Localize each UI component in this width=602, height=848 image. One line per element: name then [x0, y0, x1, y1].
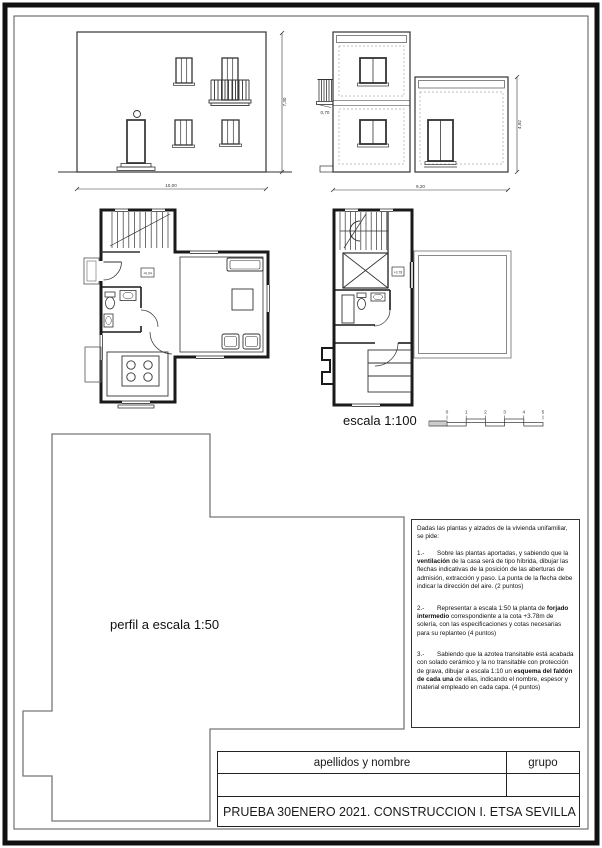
- scale-bar-ticks: [447, 416, 543, 420]
- group-header-cell: grupo: [507, 752, 579, 773]
- scale-bar-hatch: [429, 421, 447, 426]
- side-width-dim-label: 9,20: [416, 184, 425, 189]
- group-entry-cell: [507, 774, 579, 796]
- item-3-number: 3.-: [417, 651, 437, 659]
- ground-floor-plan: +0.04: [84, 208, 271, 409]
- graphic-scale-bar: [429, 416, 543, 427]
- front-height-dim-label: 7,30: [282, 97, 287, 106]
- upper-level-label: +3.78: [394, 271, 403, 275]
- roof-terrace: [414, 251, 511, 358]
- exam-sheet: 10,00 7,30: [0, 0, 602, 848]
- scale-number-1: 1: [465, 410, 468, 416]
- scale-number-0: 0: [446, 410, 449, 416]
- item-2-text: Representar a escala 1:50 la planta de: [437, 605, 547, 612]
- title-block-entry-row: [218, 773, 579, 796]
- scale-number-5: 5: [542, 410, 545, 416]
- entry-stoop: [84, 258, 99, 284]
- instruction-item-1: 1.-Sobre las plantas aportadas, y sabien…: [417, 550, 574, 592]
- side-balcony: [317, 80, 334, 173]
- title-block: apellidos y nombre grupo PRUEBA 30ENERO …: [217, 751, 580, 827]
- scale-label: escala 1:100: [343, 413, 417, 428]
- side-height-dim-label: 4,92: [517, 120, 522, 129]
- name-entry-cell: [218, 774, 507, 796]
- front-width-dim-label: 10,00: [165, 183, 177, 188]
- side-elevation-drawing: 0,70 9,20 4,92: [317, 32, 523, 192]
- profile-scale-label: perfil a escala 1:50: [110, 617, 219, 632]
- ground-level-label: +0.04: [143, 272, 152, 276]
- instructions-box: Dadas las plantas y alzados de la vivien…: [411, 519, 580, 728]
- scale-bar-numbers: 0 1 2 3 4 5: [446, 410, 545, 416]
- low-volume-outline: [415, 77, 508, 172]
- instruction-item-3: 3.-Sabiendo que la azotea transitable es…: [417, 651, 574, 693]
- item-1-bold: ventilación: [417, 558, 450, 565]
- scale-number-4: 4: [522, 410, 525, 416]
- facade-outline: [77, 32, 266, 172]
- instructions-intro: Dadas las plantas y alzados de la vivien…: [417, 525, 574, 542]
- instruction-item-2: 2.-Representar a escala 1:50 la planta d…: [417, 605, 574, 638]
- scale-bar-segments: [447, 419, 543, 426]
- balcony-dim-label: 0,70: [321, 110, 330, 115]
- scale-number-2: 2: [484, 410, 487, 416]
- item-1-number: 1.-: [417, 550, 437, 558]
- scale-number-3: 3: [503, 410, 506, 416]
- plan-outline: [101, 210, 268, 402]
- exam-title-row: PRUEBA 30ENERO 2021. CONSTRUCCION I. ETS…: [218, 796, 579, 826]
- item-1-text: Sobre las plantas aportadas, y sabiendo …: [437, 550, 568, 557]
- upper-floor-plan: +3.78: [322, 208, 511, 408]
- name-header-cell: apellidos y nombre: [218, 752, 507, 773]
- wall-recess: [322, 348, 334, 384]
- title-block-header-row: apellidos y nombre grupo: [218, 752, 579, 773]
- item-2-number: 2.-: [417, 605, 437, 613]
- tall-volume-outline: [333, 32, 410, 172]
- front-elevation-drawing: 10,00 7,30: [58, 31, 292, 191]
